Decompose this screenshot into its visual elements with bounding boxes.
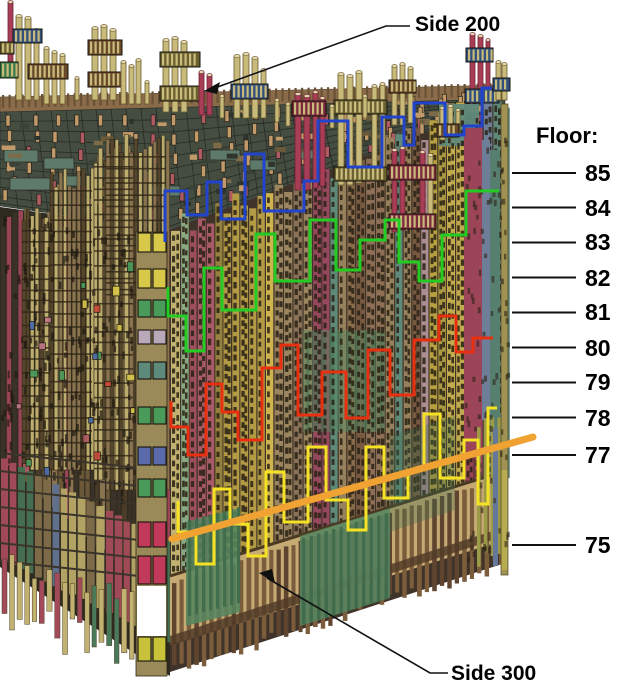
svg-text:Side 200: Side 200 <box>415 13 500 36</box>
svg-text:83: 83 <box>585 229 611 255</box>
svg-text:80: 80 <box>585 335 611 361</box>
svg-text:Floor:: Floor: <box>536 123 598 148</box>
svg-text:78: 78 <box>585 405 611 431</box>
svg-text:85: 85 <box>585 160 611 186</box>
svg-text:75: 75 <box>585 532 611 558</box>
svg-text:79: 79 <box>585 369 611 395</box>
svg-text:82: 82 <box>585 265 611 291</box>
svg-text:Side 300: Side 300 <box>451 662 536 685</box>
svg-text:84: 84 <box>585 195 611 221</box>
svg-text:77: 77 <box>585 442 611 468</box>
svg-text:81: 81 <box>585 299 611 325</box>
